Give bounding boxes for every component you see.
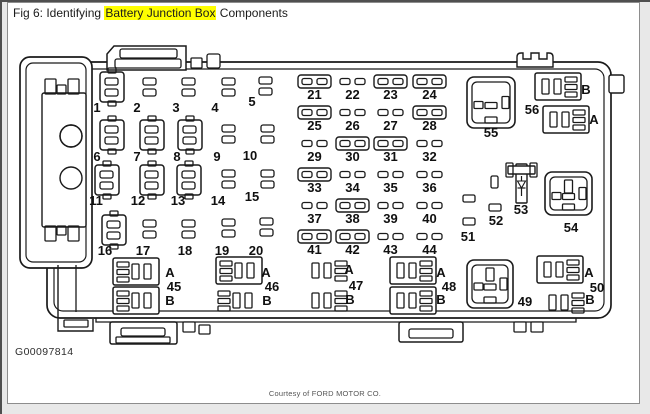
- svg-text:44: 44: [422, 242, 437, 257]
- svg-text:12: 12: [131, 193, 145, 208]
- svg-text:3: 3: [172, 100, 179, 115]
- svg-text:B: B: [165, 293, 174, 308]
- svg-text:A: A: [436, 265, 446, 280]
- svg-text:36: 36: [422, 180, 436, 195]
- svg-text:7: 7: [133, 149, 140, 164]
- svg-text:23: 23: [383, 87, 397, 102]
- svg-text:17: 17: [136, 243, 150, 258]
- svg-text:B: B: [345, 292, 354, 307]
- svg-text:33: 33: [307, 180, 321, 195]
- svg-text:24: 24: [422, 87, 437, 102]
- svg-text:A: A: [584, 265, 594, 280]
- svg-text:A: A: [165, 265, 175, 280]
- svg-text:6: 6: [93, 149, 100, 164]
- svg-text:4: 4: [211, 100, 219, 115]
- svg-text:14: 14: [211, 193, 226, 208]
- svg-text:53: 53: [514, 202, 528, 217]
- svg-text:22: 22: [345, 87, 359, 102]
- svg-text:26: 26: [345, 118, 359, 133]
- svg-text:A: A: [344, 262, 354, 277]
- svg-text:56: 56: [525, 102, 539, 117]
- svg-text:46: 46: [265, 279, 279, 294]
- svg-text:25: 25: [307, 118, 321, 133]
- svg-text:54: 54: [564, 220, 579, 235]
- svg-text:49: 49: [518, 294, 532, 309]
- svg-text:9: 9: [213, 149, 220, 164]
- svg-text:20: 20: [249, 243, 263, 258]
- svg-text:13: 13: [171, 193, 185, 208]
- figure-id: G00097814: [15, 346, 73, 358]
- svg-text:30: 30: [345, 149, 359, 164]
- svg-text:A: A: [589, 112, 599, 127]
- svg-text:31: 31: [383, 149, 397, 164]
- svg-text:29: 29: [307, 149, 321, 164]
- svg-text:45: 45: [167, 279, 181, 294]
- svg-text:43: 43: [383, 242, 397, 257]
- courtesy-credit: Courtesy of FORD MOTOR CO.: [190, 389, 460, 398]
- svg-text:38: 38: [345, 211, 359, 226]
- svg-text:15: 15: [245, 189, 259, 204]
- svg-text:41: 41: [307, 242, 321, 257]
- battery-junction-box-diagram: 1678111213162345910141517181920212223242…: [0, 0, 650, 414]
- svg-text:42: 42: [345, 242, 359, 257]
- svg-text:21: 21: [307, 87, 321, 102]
- svg-text:37: 37: [307, 211, 321, 226]
- svg-text:52: 52: [489, 213, 503, 228]
- svg-text:10: 10: [243, 148, 257, 163]
- svg-text:11: 11: [89, 193, 103, 208]
- svg-text:1: 1: [93, 100, 100, 115]
- svg-text:2: 2: [133, 100, 140, 115]
- svg-text:32: 32: [422, 149, 436, 164]
- svg-text:16: 16: [98, 243, 112, 258]
- svg-text:55: 55: [484, 125, 498, 140]
- svg-text:50: 50: [590, 280, 604, 295]
- svg-text:B: B: [262, 293, 271, 308]
- svg-text:A: A: [261, 265, 271, 280]
- svg-text:35: 35: [383, 180, 397, 195]
- svg-text:8: 8: [173, 149, 180, 164]
- bottom-mounting-tabs: [96, 318, 576, 344]
- svg-text:18: 18: [178, 243, 192, 258]
- svg-text:40: 40: [422, 211, 436, 226]
- svg-text:28: 28: [422, 118, 436, 133]
- svg-text:5: 5: [248, 94, 255, 109]
- svg-text:34: 34: [345, 180, 360, 195]
- svg-text:47: 47: [349, 278, 363, 293]
- svg-text:19: 19: [215, 243, 229, 258]
- svg-text:27: 27: [383, 118, 397, 133]
- svg-text:B: B: [581, 82, 590, 97]
- svg-text:51: 51: [461, 229, 475, 244]
- svg-text:B: B: [436, 292, 445, 307]
- svg-text:39: 39: [383, 211, 397, 226]
- svg-text:48: 48: [442, 279, 456, 294]
